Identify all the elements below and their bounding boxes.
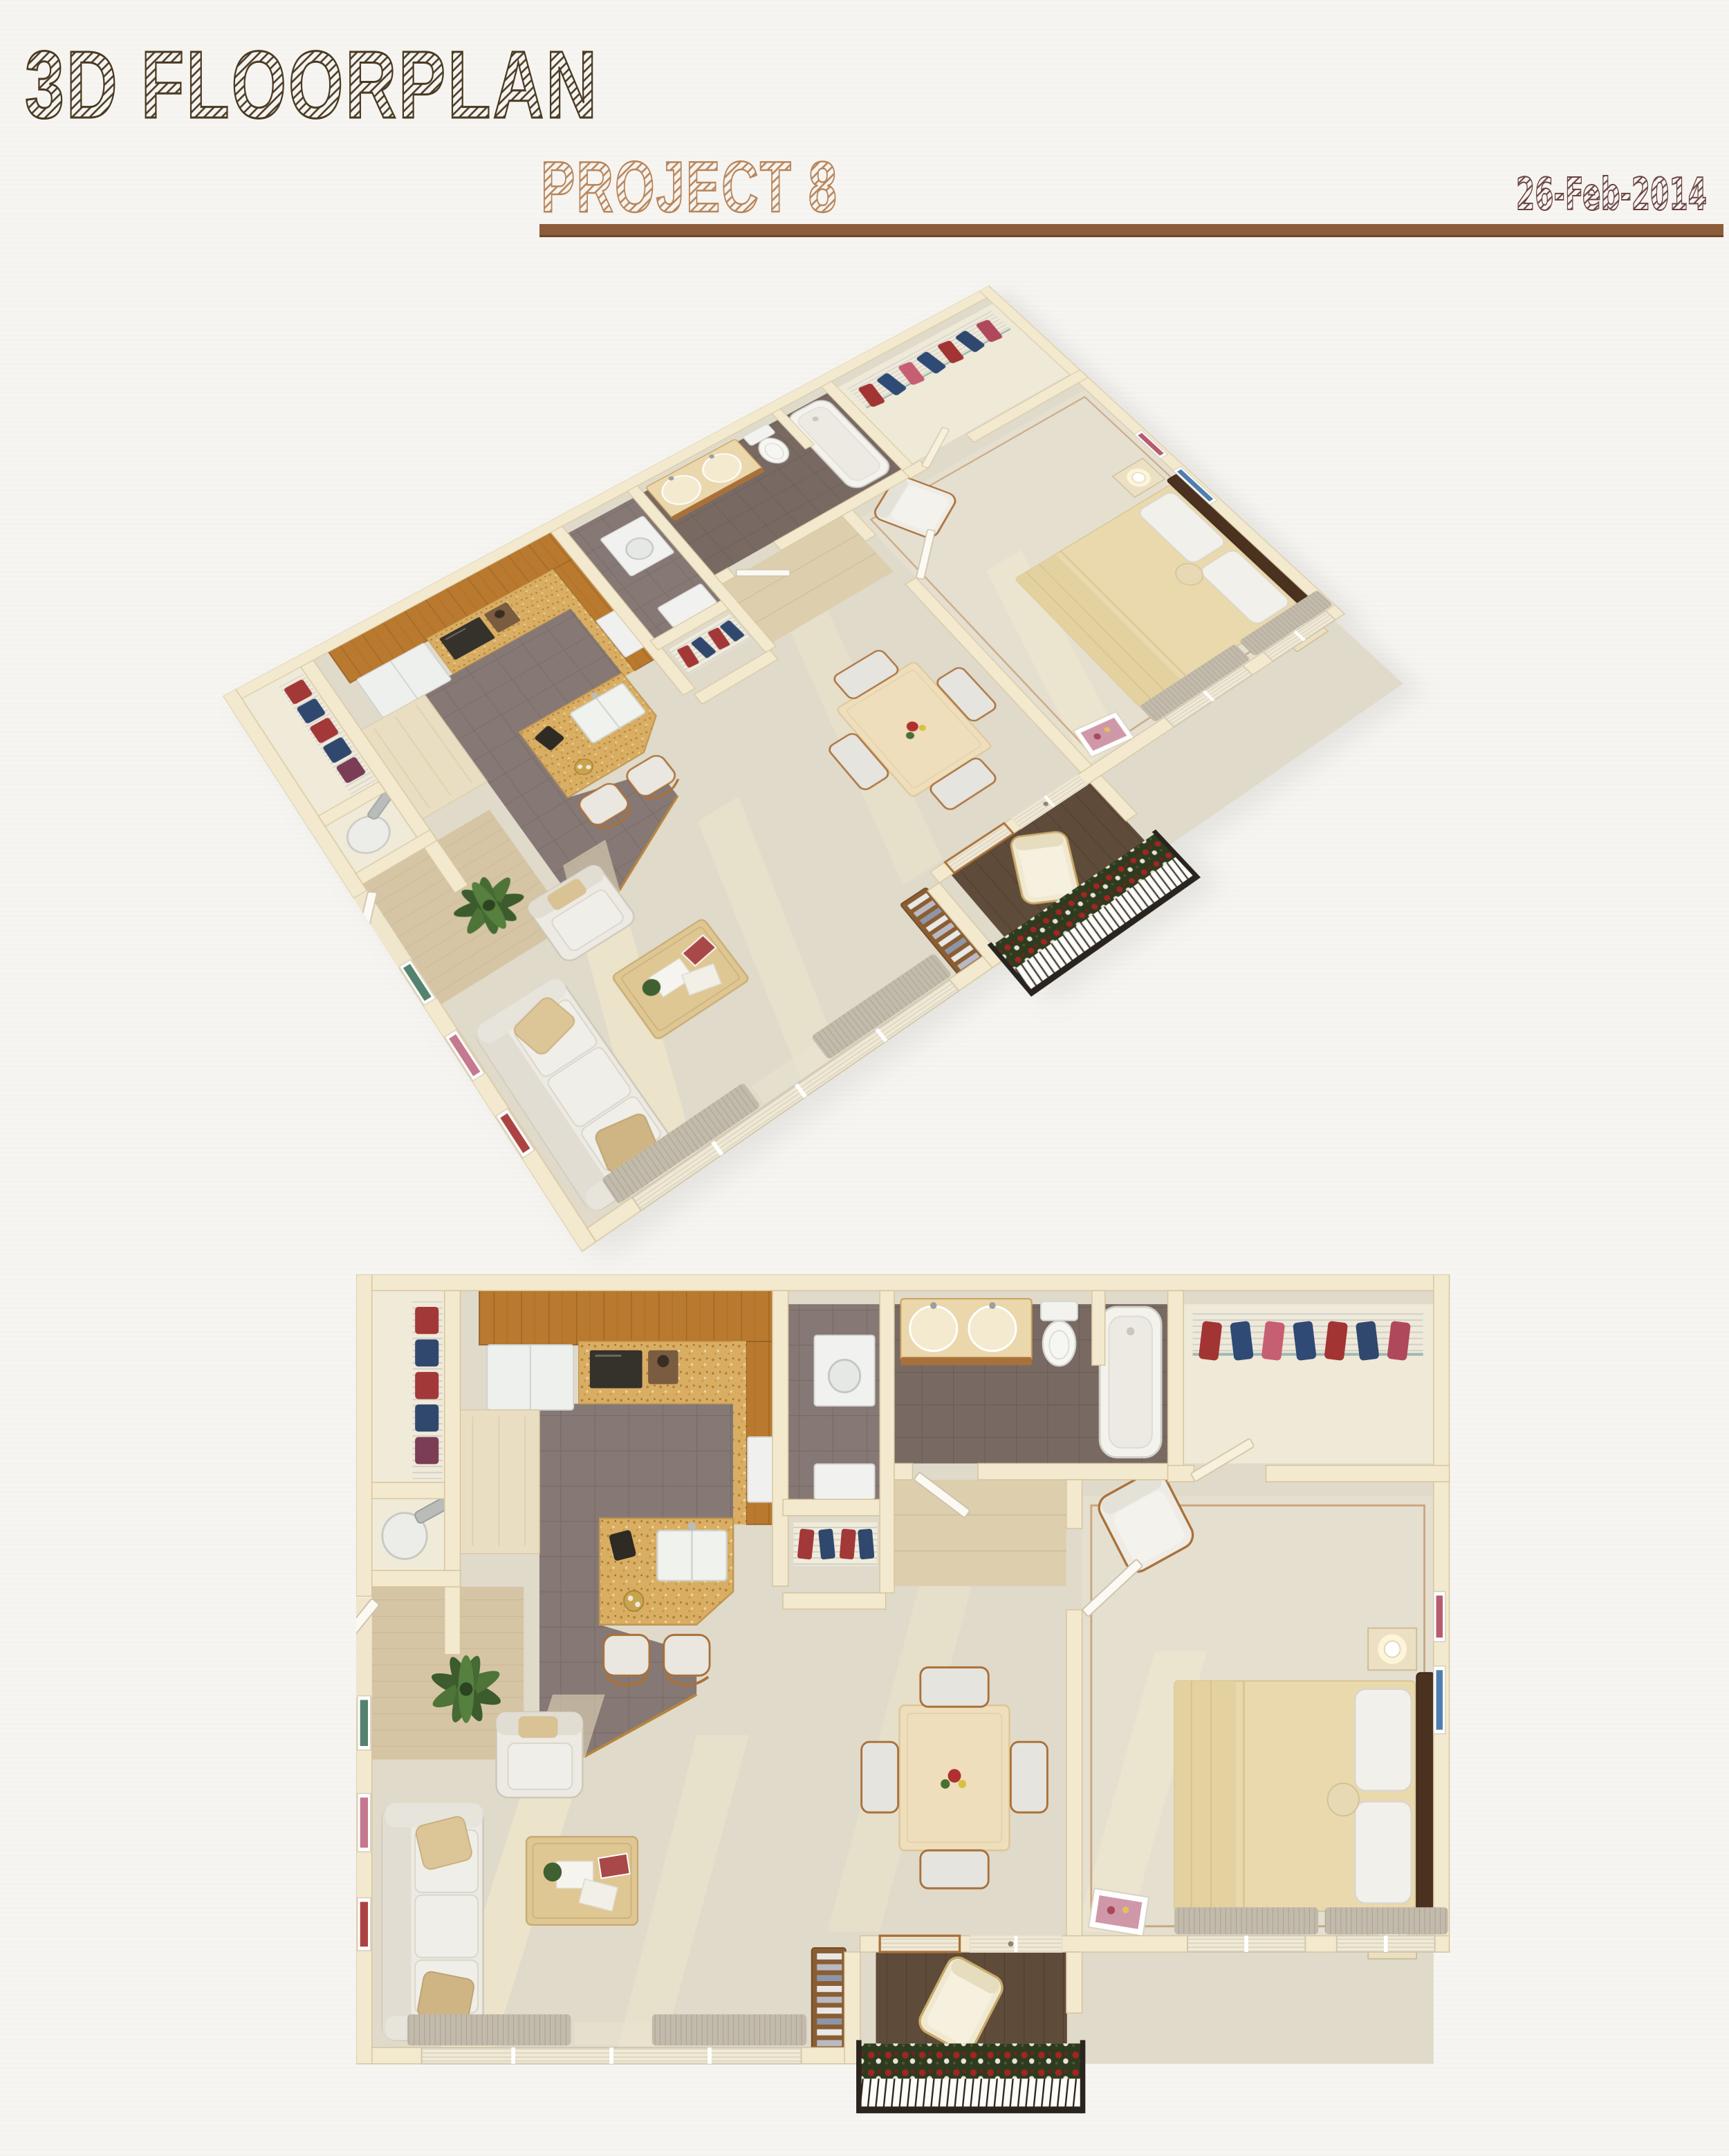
isometric-3d-floorplan <box>223 284 1454 1301</box>
project-subtitle: PROJECT 8 <box>541 147 838 227</box>
date-label: 26-Feb-2014 <box>1516 169 1707 221</box>
page-title: 3D FLOORPLAN <box>25 32 599 138</box>
page-background: 3D FLOORPLAN PROJECT 8 26-Feb-2014 <box>0 0 1729 2156</box>
header-divider <box>539 224 1723 237</box>
header: 3D FLOORPLAN PROJECT 8 26-Feb-2014 <box>0 0 1729 263</box>
top-down-floorplan <box>356 1274 1456 2121</box>
